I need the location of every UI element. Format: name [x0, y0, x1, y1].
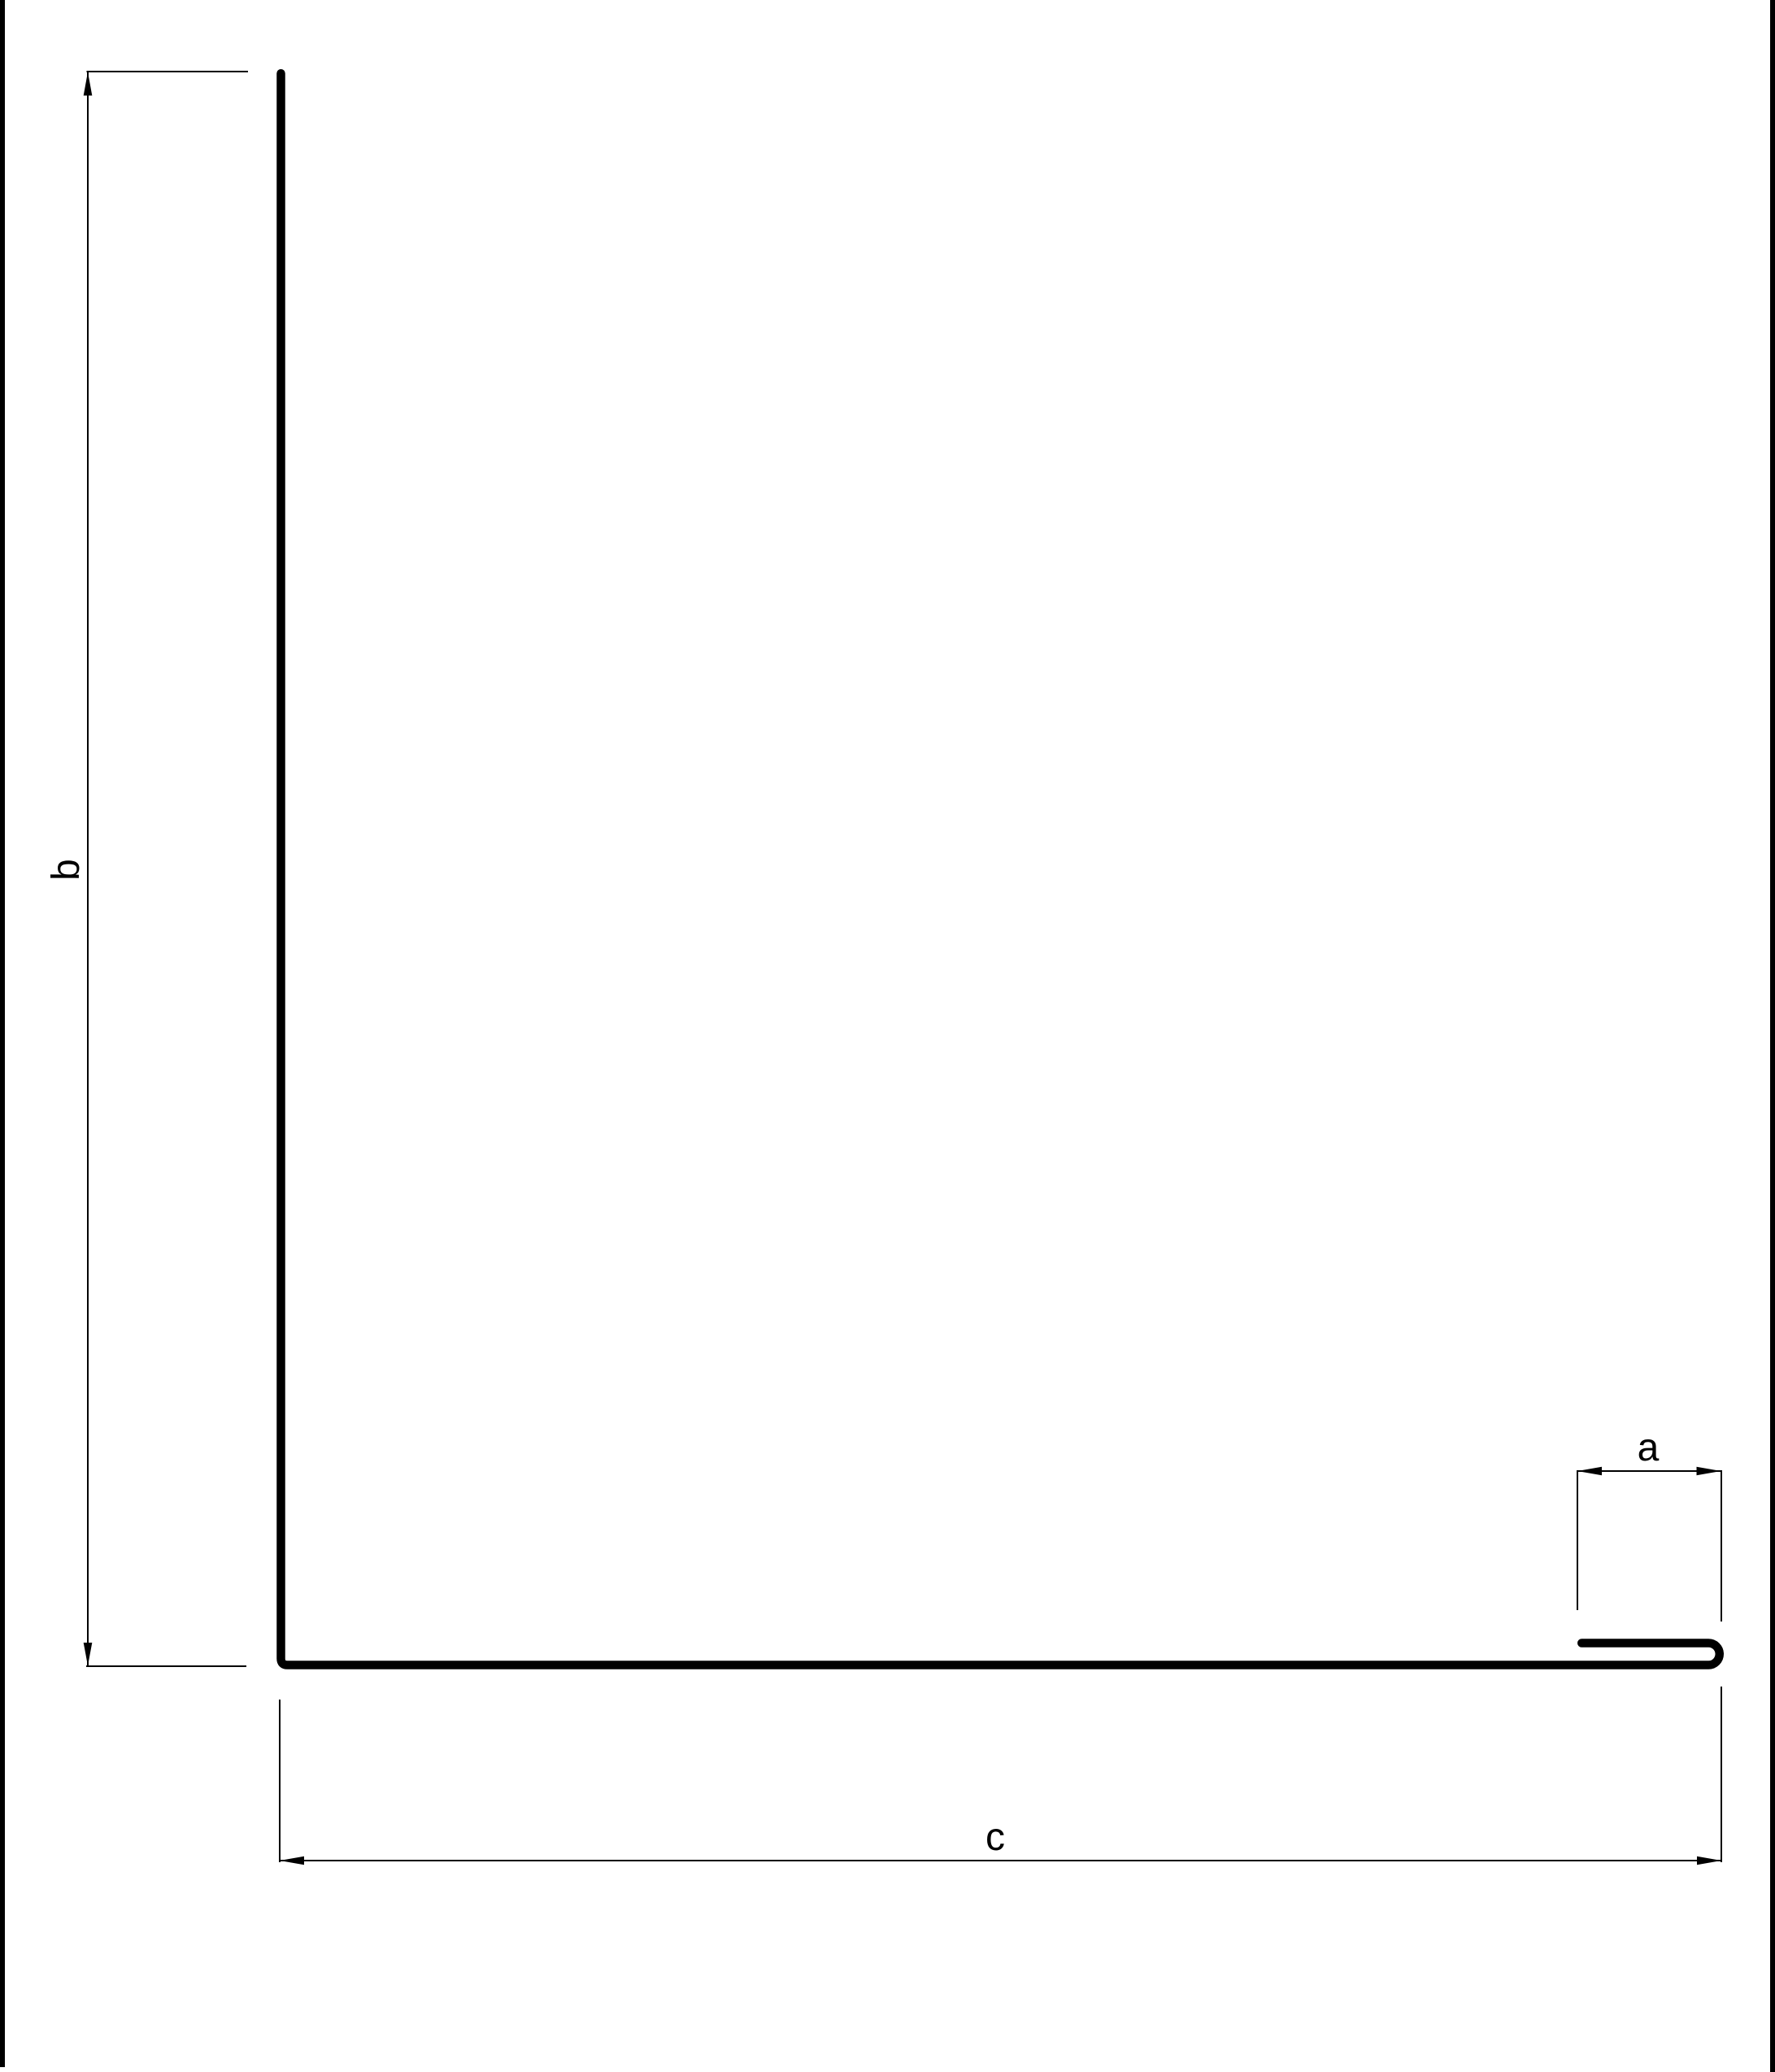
svg-text:a: a — [1638, 1426, 1660, 1469]
svg-text:b: b — [45, 859, 88, 881]
svg-text:c: c — [985, 1816, 1005, 1859]
